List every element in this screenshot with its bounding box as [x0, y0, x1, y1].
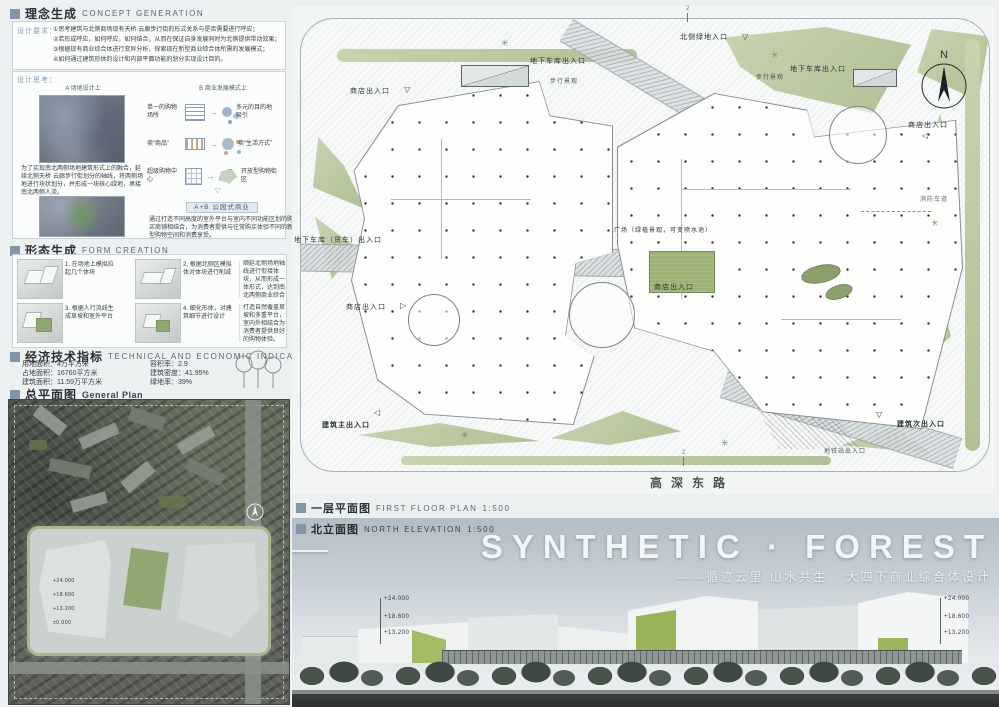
- business-to: 开放型购物街区: [241, 168, 279, 184]
- level-mark: +18.600: [944, 614, 969, 620]
- shelf-icon: [185, 104, 205, 121]
- design-thinking-panel: 设计思考： A 场地设计上 为了实现南北两侧场地建筑形式上的融合，延续北侧天桥·…: [12, 71, 286, 239]
- elevation-title-en: NORTH ELEVATION: [364, 525, 462, 534]
- tree-icon: ✳: [771, 51, 779, 60]
- section-bullet-icon: [296, 524, 306, 534]
- garage-truck-entrance-label: 地下车库（货车）出入口: [294, 235, 382, 245]
- combo-tag: A+B 公园式商业: [186, 202, 258, 213]
- form-note: 打造自然覆盖草坡和多重平台，室内外相结合为消费者提供良好的购物体验。: [239, 304, 287, 342]
- requirement-line: ③根据现有商业综合体进行变异分析，探索现在新型商业综合体所需的发展模式；: [53, 46, 281, 54]
- shop-entrance-label: 商店出入口: [908, 120, 948, 130]
- level-mark: ±0.000: [53, 620, 71, 626]
- site-aerial-photo-green: [39, 196, 125, 237]
- indicator-item: 绿地率：39%: [150, 378, 192, 388]
- roof-plan-overlay: +24.000 +18.600 +13.200 ±0.000: [27, 526, 271, 656]
- floor-plan-scale: 1:500: [482, 504, 510, 513]
- fire-lane-line: [861, 211, 931, 212]
- massing-step-1-image: [17, 259, 63, 299]
- business-from: 超级购物中心: [147, 168, 181, 184]
- north-elevation-panel: 北立面图 NORTH ELEVATION 1:500 SYNTHETIC · F…: [292, 518, 999, 707]
- site-aerial-photo: [39, 95, 125, 163]
- combo-text: 通过打造不同高度的室外平台与室内不同功能区划的购买商铺相结合，为消费者提供与往常…: [149, 216, 295, 240]
- requirement-line: ①思考建筑与北侧商场现有天桥·云廊步行街的形式关系与是否需要进行呼应；: [53, 26, 281, 34]
- elevation-header: 北立面图 NORTH ELEVATION 1:500: [296, 521, 495, 537]
- garage-entrance-label: 地下车库出入口: [790, 64, 846, 74]
- ground-band: [292, 694, 999, 707]
- business-row: 卖“商品” → 卖“生活方式”: [147, 129, 293, 159]
- general-plan-title-en: General Plan: [82, 390, 143, 400]
- thinking-label: 设计思考：: [17, 75, 57, 85]
- cluster-icon: [222, 107, 232, 117]
- garage-entrance-label: 地下车库出入口: [530, 56, 586, 66]
- entrance-arrow-icon: ◁: [922, 132, 928, 140]
- form-note: 顺延北侧场地轴线进行衔接体块，从而形成一体形式，达到南北两侧商业综合体和步行街融…: [239, 260, 287, 298]
- concept-title-zh: 理念生成: [25, 5, 77, 22]
- massing-step-caption: 2. 根据北侧区模拟体对体块进行削减: [183, 261, 235, 277]
- entrance-arrow-icon: ▽: [876, 411, 882, 419]
- entrance-arrow-icon: ◁: [374, 409, 380, 417]
- presentation-board: 理念生成 CONCEPT GENERATION 设计要求： ①思考建筑与北侧商场…: [0, 0, 999, 707]
- road-strip: [9, 662, 289, 674]
- project-subtitle: ——循迹云里 山水共生 · 大四下商业综合体设计: [677, 568, 991, 585]
- level-mark: +13.200: [944, 630, 969, 636]
- goods-icon: [185, 138, 205, 150]
- dimension-line: [380, 598, 381, 644]
- business-to: 多元的目的地吸引: [236, 104, 274, 120]
- section-mark: 2: [682, 450, 685, 466]
- site-study-caption: A 场地设计上: [33, 85, 133, 93]
- entrance-arrow-icon: ▽: [742, 33, 748, 41]
- business-from: 卖“商品”: [147, 140, 181, 148]
- green-strip: [401, 456, 831, 465]
- level-mark: +24.000: [944, 596, 969, 602]
- mall-icon: [185, 168, 202, 185]
- subway-entrance-label: 地铁站出入口: [824, 446, 866, 455]
- massing-step-caption: 4. 细化形体，对建筑细节进行设计: [183, 305, 235, 321]
- business-row: 单一的购物场所 → 多元的目的地吸引: [147, 97, 293, 127]
- business-from: 单一的购物场所: [147, 104, 181, 120]
- floor-plan-title-zh: 一层平面图: [311, 500, 371, 516]
- shop-entrance-label: 商店出入口: [346, 302, 386, 312]
- entrance-arrow-icon: ▽: [404, 86, 410, 94]
- form-creation-panel: 1. 在场地上模拟拉起几个体块 2. 根据北侧区模拟体对体块进行削减 3. 根据…: [12, 254, 287, 348]
- garage-ramp: [853, 69, 897, 87]
- level-mark: +13.200: [53, 606, 75, 612]
- atrium-circle: [569, 282, 635, 348]
- level-mark: +24.000: [384, 596, 409, 602]
- north-entrance-label: 北侧绿地入口: [680, 32, 728, 42]
- arrow-right-icon: →: [209, 139, 218, 149]
- level-mark: +18.600: [53, 592, 75, 598]
- open-block-icon: [219, 169, 237, 184]
- massing-step-3-image: [17, 303, 63, 343]
- north-compass-icon: N: [918, 46, 970, 118]
- arrow-right-icon: →: [206, 171, 215, 181]
- shop-entrance-label: 商店出入口: [654, 282, 694, 292]
- secondary-entrance-label: 建筑次出入口: [897, 419, 945, 429]
- level-mark: +13.200: [384, 630, 409, 636]
- first-floor-plan: ✳ ✳ ✳ ✳ ✳ 北侧绿地入口 ▽ 地下车库出入口 地下车库出入口 步行景观 …: [292, 6, 995, 494]
- project-title: SYNTHETIC · FOREST: [481, 528, 993, 566]
- massing-step-2-image: [135, 259, 181, 299]
- tree-icon: ✳: [721, 439, 729, 448]
- compass-n-letter: N: [940, 49, 948, 61]
- level-mark: +24.000: [53, 578, 75, 584]
- business-study-caption: B 商业发展模式上: [163, 85, 283, 93]
- concept-title-en: CONCEPT GENERATION: [82, 9, 204, 18]
- entrance-arrow-icon: ▷: [400, 302, 406, 310]
- massing-step-caption: 3. 根据人行流线生成草坡和室外平台: [65, 305, 117, 321]
- concept-section-header: 理念生成 CONCEPT GENERATION: [10, 5, 204, 22]
- tree-icon: ✳: [461, 431, 469, 440]
- dimension-line: [940, 598, 941, 644]
- section-mark: 2: [686, 6, 689, 22]
- design-requirements-panel: 设计要求： ①思考建筑与北侧商场现有天桥·云廊步行街的形式关系与是否需要进行呼应…: [12, 21, 286, 70]
- tree-icon: ✳: [931, 219, 939, 228]
- building-west: [351, 81, 613, 425]
- shop-entrance-label: 商店出入口: [350, 86, 390, 96]
- walk-landscape-label: 步行景观: [756, 72, 784, 81]
- main-entrance-label: 建筑主出入口: [322, 420, 370, 430]
- fire-lane-label: 消防车道: [920, 194, 948, 203]
- floor-plan-title-en: FIRST FLOOR PLAN: [376, 504, 477, 513]
- walk-landscape-label: 步行景观: [550, 76, 578, 85]
- green-sliver: [359, 417, 539, 447]
- general-plan-satellite: +24.000 +18.600 +13.200 ±0.000: [8, 399, 290, 705]
- site-study-text: 为了实现南北两侧场地建筑形式上的融合，延续北侧天桥·云廊步行街划分的轴线，将两侧…: [21, 165, 143, 197]
- massing-step-caption: 1. 在场地上模拟拉起几个体块: [65, 261, 117, 277]
- tree-sketch: [232, 350, 286, 390]
- level-mark: +18.600: [384, 614, 409, 620]
- chevron-down-icon: ▽: [215, 187, 220, 195]
- plaza-label: 广场（绿植景观，可变喷水池）: [614, 225, 712, 234]
- floor-plan-header: 一层平面图 FIRST FLOOR PLAN 1:500: [296, 500, 511, 516]
- arrow-right-icon: →: [209, 107, 218, 117]
- business-to: 卖“生活方式”: [238, 140, 276, 148]
- massing-step-4-image: [135, 303, 181, 343]
- north-arrow-icon: [245, 502, 265, 522]
- tree-icon: ✳: [501, 39, 509, 48]
- section-bullet-icon: [10, 352, 20, 362]
- atrium-circle: [408, 294, 460, 346]
- requirement-line: ④如何通过建筑形体的设计和内部平面功能的划分实现设计目的。: [53, 56, 281, 64]
- indicators-title-en: TECHNICAL AND ECONOMIC INDICATORS: [108, 352, 322, 361]
- combo-block: A+B 公园式商业 通过打造不同高度的室外平台与室内不同功能区划的购买商铺相结合…: [149, 196, 295, 236]
- section-bullet-icon: [10, 9, 20, 19]
- section-bullet-icon: [10, 390, 20, 400]
- requirement-line: ②若形成呼应，如何呼应，如何结合，从而在保证自身发展同时为北侧提供带动效果；: [53, 36, 281, 44]
- garage-ramp: [461, 65, 529, 87]
- elevation-title-zh: 北立面图: [311, 521, 359, 537]
- title-dash-line: [292, 550, 328, 552]
- lifestyle-icon: [222, 138, 234, 150]
- atrium-circle: [829, 106, 887, 164]
- road-name-label: 高深东路: [542, 474, 842, 491]
- requirements-label: 设计要求：: [17, 26, 57, 36]
- section-bullet-icon: [296, 503, 306, 513]
